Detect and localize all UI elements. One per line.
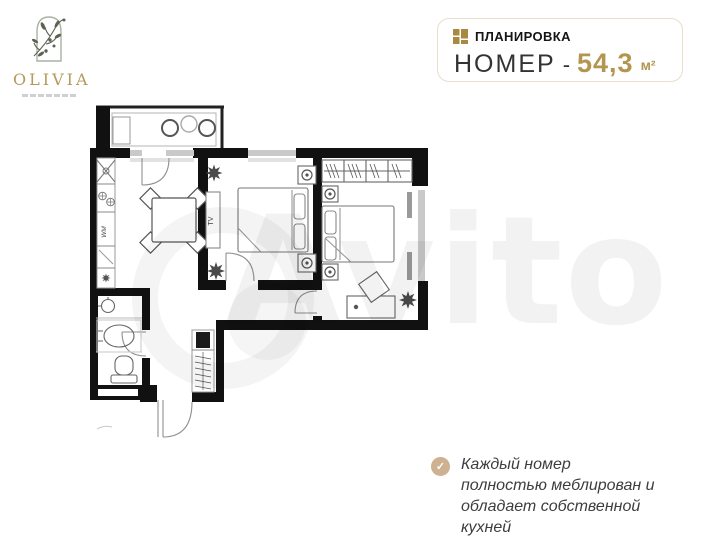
washbasin [104, 325, 134, 347]
bedroom2-door [295, 291, 317, 313]
check-icon: ✓ [431, 457, 450, 476]
pillow [325, 211, 336, 234]
bedroom-2 [322, 160, 421, 318]
toilet [111, 356, 137, 383]
entry-door [158, 400, 192, 437]
plan-mark [97, 426, 112, 429]
kitchen: WM [97, 158, 115, 288]
feature-text: Каждый номер полностью меблирован и обла… [461, 454, 657, 538]
plant [395, 287, 420, 312]
bedroom-1: TV [202, 161, 316, 284]
curtain [407, 192, 412, 218]
washing-machine-label: WM [101, 226, 108, 238]
plan-header-card: ПЛАНИРОВКА НОМЕР - 54,3 м² [437, 18, 683, 82]
plan-eyebrow: ПЛАНИРОВКА [475, 29, 571, 44]
floorplan-icon [453, 29, 468, 44]
pillow [325, 237, 336, 260]
balcony-stool [162, 120, 178, 136]
area-unit: м² [641, 57, 656, 73]
curtain [407, 252, 412, 280]
tv-label: TV [208, 216, 215, 225]
balcony-stool [199, 120, 215, 136]
feature-item: ✓ Каждый номер полностью меблирован и об… [431, 454, 657, 538]
dining-set [140, 188, 208, 253]
room-label: НОМЕР [454, 50, 556, 79]
balcony-door [142, 158, 169, 185]
pillow [294, 194, 305, 219]
wall-niche [98, 389, 138, 396]
room-area-line: НОМЕР - 54,3 м² [453, 48, 682, 79]
pillow [294, 224, 305, 249]
area-value: 54,3 [577, 48, 634, 79]
balcony [96, 107, 224, 148]
dining-table [152, 198, 196, 242]
bedroom1-door [226, 253, 254, 281]
balcony-table [181, 116, 197, 132]
dash: - [563, 52, 570, 78]
shower-drain [102, 300, 115, 313]
bathroom [96, 297, 142, 383]
balcony-unit [113, 117, 130, 144]
